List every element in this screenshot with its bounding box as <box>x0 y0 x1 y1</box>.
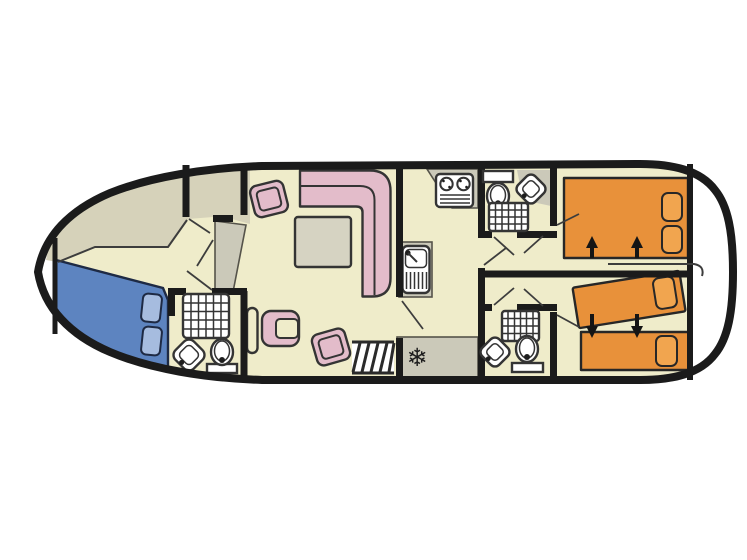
freezer-snowflake-icon: ❄ <box>407 343 428 372</box>
helm-seat-cutout <box>276 319 298 338</box>
toilet-base <box>512 363 543 372</box>
aft-cabin-top <box>564 178 688 258</box>
shower-grid <box>489 203 528 231</box>
pillow <box>662 193 682 221</box>
cistern <box>483 171 513 182</box>
boat-floorplan: ❄ <box>0 0 747 560</box>
pillow <box>652 276 678 310</box>
pillow <box>141 293 163 323</box>
pillow <box>662 226 682 253</box>
chair-seat <box>249 179 290 218</box>
toilet-dot <box>524 354 530 360</box>
shower-grid <box>502 311 539 341</box>
stairs <box>352 342 394 373</box>
floorplan-svg: ❄ <box>0 0 747 560</box>
toilet-dot <box>219 357 225 363</box>
saloon-table <box>295 217 351 267</box>
burner-dot <box>459 180 462 183</box>
arrow-stem <box>590 314 594 326</box>
pillow <box>141 326 163 356</box>
arrow-stem <box>590 246 594 258</box>
arrow-stem <box>635 314 639 326</box>
burner-dot <box>448 186 451 189</box>
steering-wheel <box>247 308 258 353</box>
burner-dot <box>442 180 445 183</box>
burner-dot <box>465 186 468 189</box>
arrow-stem <box>635 246 639 258</box>
saloon-chair <box>249 179 290 218</box>
pillow <box>656 336 677 366</box>
